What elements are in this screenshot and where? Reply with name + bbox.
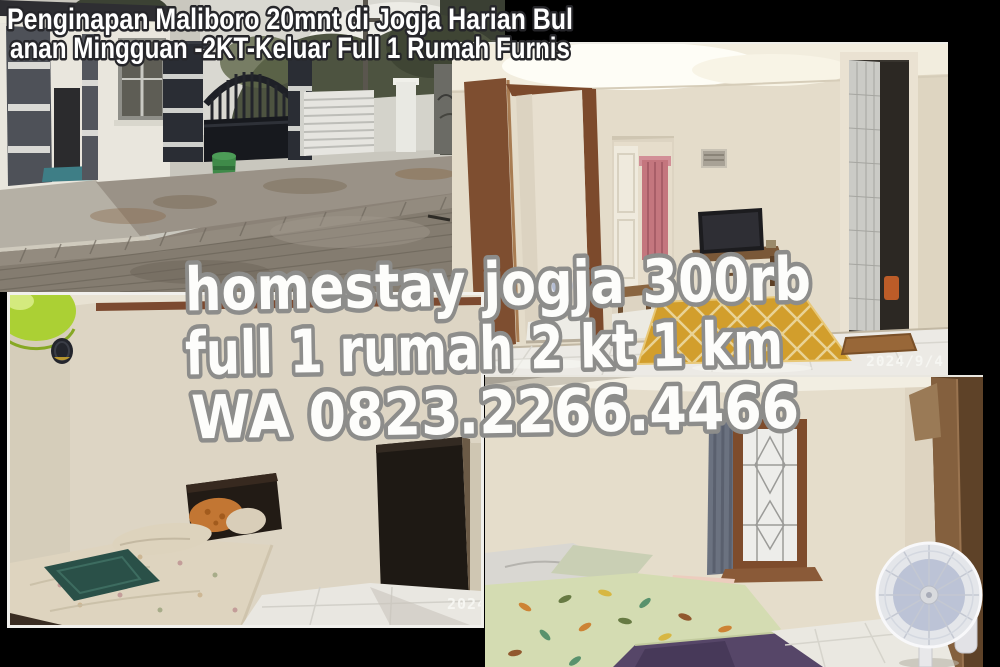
bedroom-one-scene: 2024.	[10, 295, 481, 625]
open-door	[464, 78, 604, 352]
curtain	[707, 421, 737, 575]
wall-vent	[702, 150, 726, 167]
living-room-scene: 2024/9/4	[452, 44, 948, 375]
photo-bedroom-one: 2024.	[7, 292, 484, 628]
bathroom-doorway	[840, 52, 918, 342]
timestamp-living-room: 2024/9/4	[866, 354, 944, 370]
photo-bedroom-two	[485, 375, 983, 667]
doormat	[842, 334, 916, 354]
photo-living-room: 2024/9/4	[452, 42, 948, 375]
photo-exterior-street	[0, 0, 505, 292]
exterior-scene	[0, 0, 505, 292]
listing-photo-collage: 2024/9/4	[0, 0, 1000, 667]
wall-clock	[51, 338, 73, 364]
bedroom-two-scene	[485, 377, 983, 667]
timestamp-bedroom-one: 2024.	[447, 595, 481, 613]
